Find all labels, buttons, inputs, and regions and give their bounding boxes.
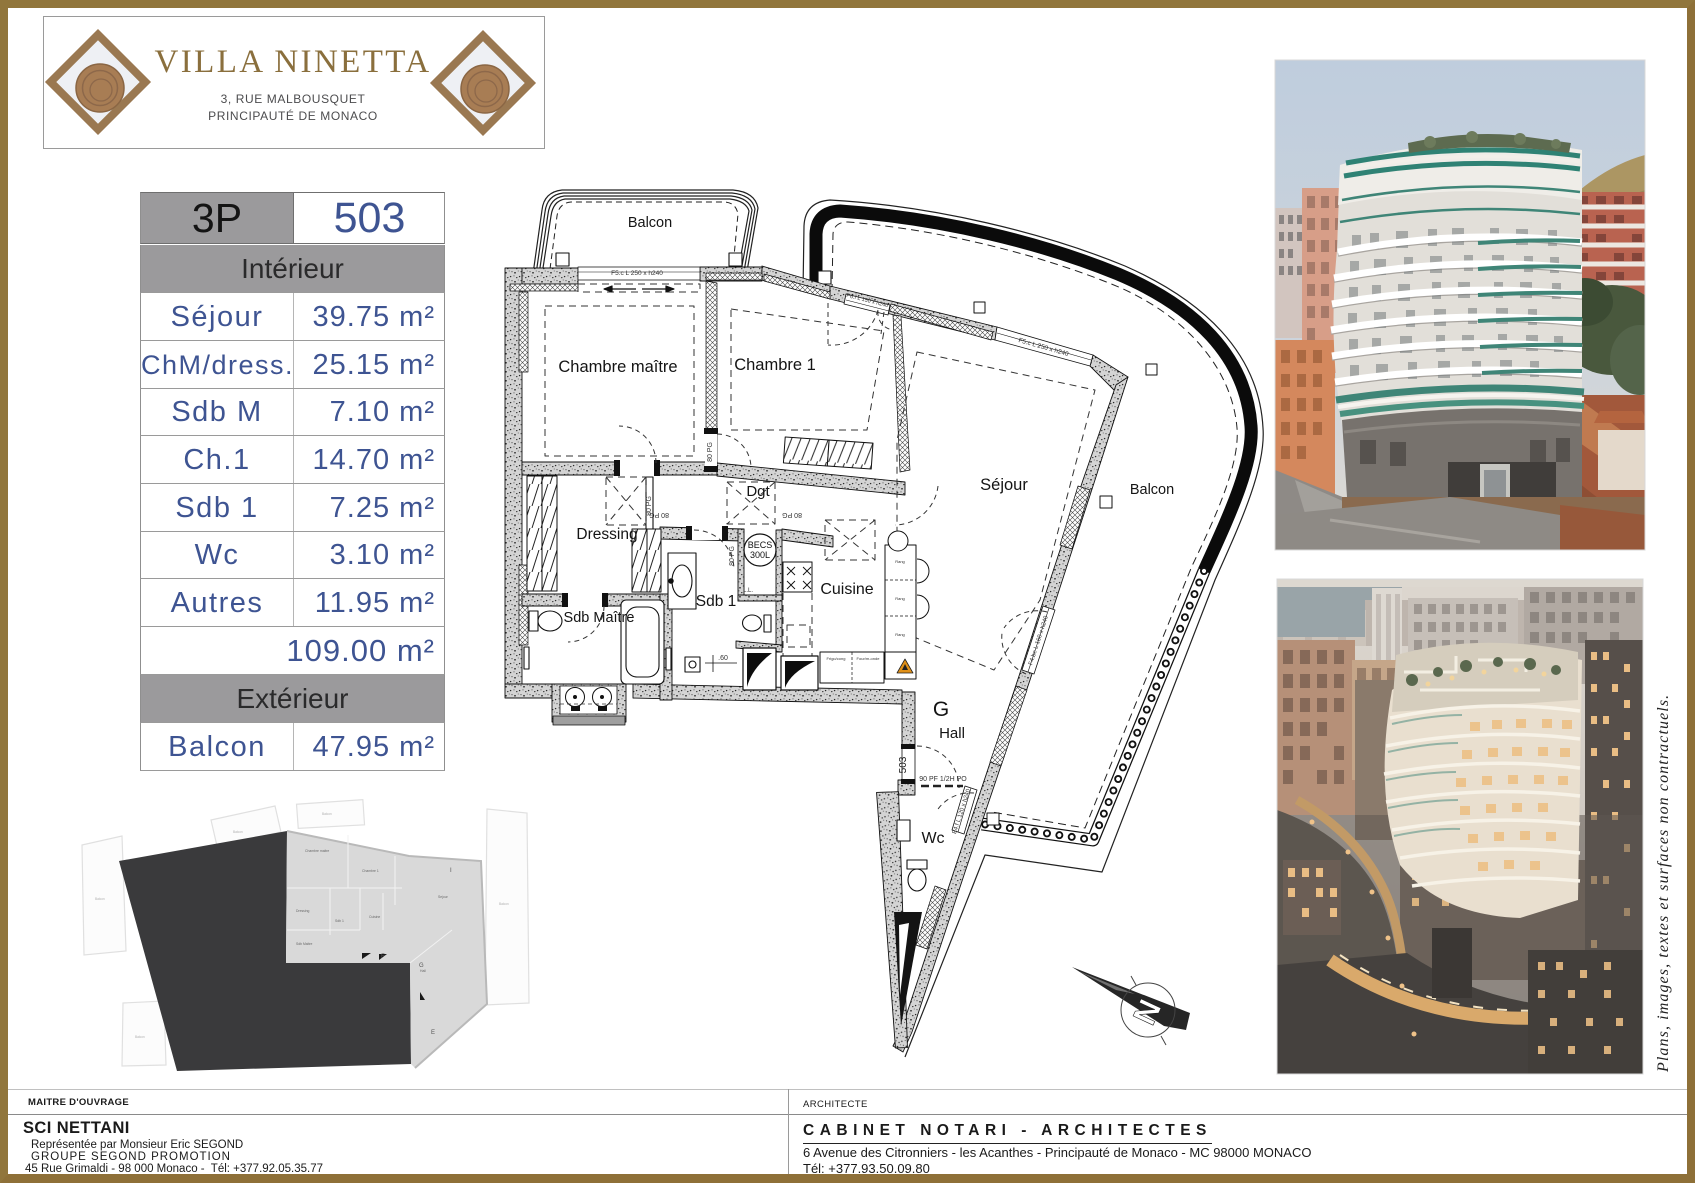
svg-text:Chambre maître: Chambre maître — [558, 358, 677, 376]
svg-text:.60: .60 — [718, 655, 728, 662]
svg-text:Sejour: Sejour — [438, 895, 449, 899]
svg-text:Balcon: Balcon — [499, 902, 509, 906]
svg-text:Hall: Hall — [420, 969, 426, 973]
svg-text:Dgt: Dgt — [746, 483, 770, 500]
svg-text:Hall: Hall — [939, 725, 965, 742]
svg-text:L.L.: L.L. — [743, 588, 753, 594]
svg-text:Sdb Maître: Sdb Maître — [564, 610, 635, 626]
svg-text:Sdb 1: Sdb 1 — [696, 593, 737, 610]
svg-text:Chambre 1: Chambre 1 — [362, 869, 379, 873]
svg-text:Cuisine: Cuisine — [369, 915, 380, 919]
svg-text:Cuisine: Cuisine — [820, 581, 873, 598]
svg-text:BECS: BECS — [748, 540, 773, 550]
svg-text:F5.c L 250 x h240: F5.c L 250 x h240 — [611, 270, 663, 277]
svg-text:Chambre maitre: Chambre maitre — [305, 849, 329, 853]
svg-text:N: N — [1126, 994, 1168, 1030]
svg-text:Balcon: Balcon — [1130, 482, 1174, 498]
svg-text:Rang: Rang — [895, 559, 905, 564]
svg-text:Balcon: Balcon — [135, 1035, 145, 1039]
svg-text:Rang: Rang — [895, 632, 905, 637]
svg-text:Dressing: Dressing — [576, 526, 637, 543]
svg-text:Balcon: Balcon — [628, 215, 672, 231]
svg-text:Four/m-onde: Four/m-onde — [857, 656, 881, 661]
svg-text:503: 503 — [898, 756, 909, 773]
svg-text:Rang: Rang — [895, 596, 905, 601]
svg-text:Sdb Maitre: Sdb Maitre — [296, 942, 313, 946]
svg-text:80 PG: 80 PG — [707, 442, 714, 462]
svg-text:E: E — [431, 1030, 435, 1036]
svg-text:Chambre 1: Chambre 1 — [734, 356, 816, 374]
svg-text:80 PG: 80 PG — [782, 511, 802, 518]
svg-text:300L: 300L — [750, 550, 770, 560]
svg-text:90 PF 1/2H PO: 90 PF 1/2H PO — [919, 776, 967, 783]
svg-text:G: G — [933, 698, 949, 721]
svg-text:Balcon: Balcon — [233, 830, 243, 834]
svg-text:Dressing: Dressing — [296, 909, 309, 913]
svg-text:80 PG: 80 PG — [729, 546, 736, 566]
svg-text:80 PG: 80 PG — [649, 511, 669, 518]
svg-text:Frigo/cong: Frigo/cong — [827, 656, 846, 661]
svg-text:Wc: Wc — [921, 830, 944, 847]
svg-text:G: G — [419, 963, 424, 969]
svg-text:Séjour: Séjour — [980, 476, 1028, 494]
svg-text:Balcon: Balcon — [95, 897, 105, 901]
svg-text:Balcon: Balcon — [322, 812, 332, 816]
svg-text:F: F — [381, 954, 385, 960]
svg-text:Sdb 1: Sdb 1 — [335, 919, 344, 923]
